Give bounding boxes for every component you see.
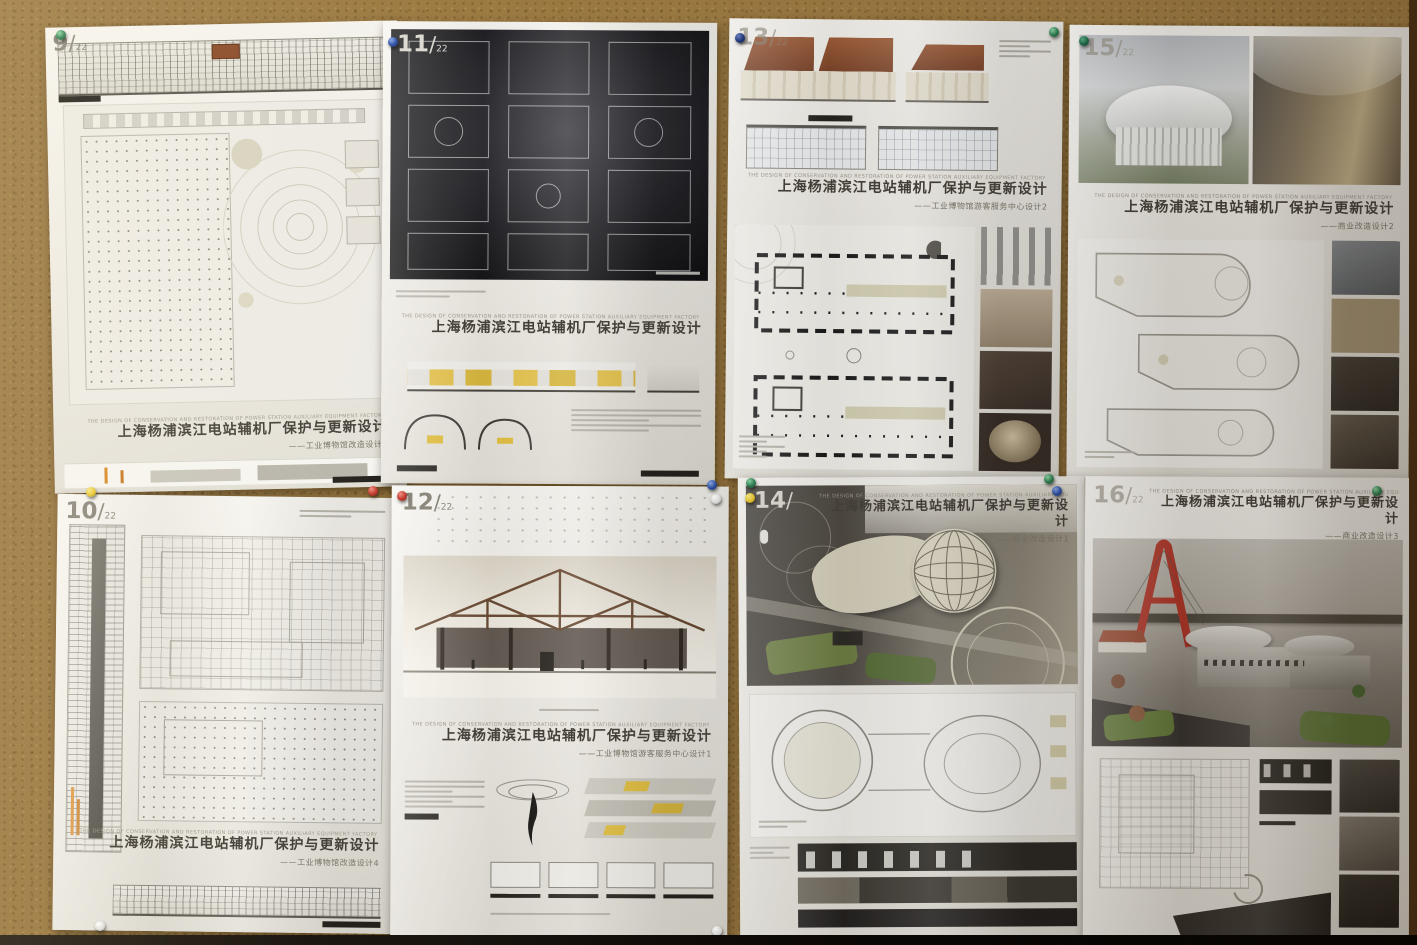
plan-and-photos: [733, 224, 1054, 471]
push-pin: [388, 37, 398, 47]
dark-elevation: [1260, 759, 1332, 783]
poster-subtitle: ——工业博物馆游客服务中心设计1: [412, 747, 712, 759]
text-line: [571, 409, 701, 412]
render-photo-column: [1330, 241, 1400, 469]
push-pin: [397, 491, 407, 501]
caption-bar: [322, 921, 380, 928]
yellow-highlight-elevation: [407, 361, 635, 392]
poster-subtitle: ——商业改造设计3: [1149, 529, 1399, 541]
legend-line: [739, 440, 767, 442]
poster-page-number: 16/22: [1093, 484, 1144, 507]
text-line: [571, 424, 701, 427]
dark-elevation: [1259, 790, 1331, 814]
title-block: THE DESIGN OF CONSERVATION AND RESTORATI…: [402, 313, 702, 338]
push-pin: [1052, 486, 1062, 496]
text-line: [405, 805, 485, 807]
push-pin: [746, 478, 756, 488]
interior-render: [1331, 357, 1399, 411]
text-line: [999, 50, 1051, 53]
round-building-render: 15/22: [1078, 35, 1249, 184]
dark-elevation-strip: [798, 842, 1077, 871]
poster-15: 15/22 THE DESIGN OF CONSERVATION AND RES…: [1066, 25, 1411, 479]
text-line: [396, 295, 450, 297]
poster-16: 16/22 THE DESIGN OF CONSERVATION AND RES…: [1083, 476, 1411, 941]
plan-legend: [739, 432, 785, 460]
title-block: THE DESIGN OF CONSERVATION AND RESTORATI…: [79, 828, 379, 868]
curved-ceiling: [1253, 36, 1402, 96]
push-pin: [86, 487, 96, 497]
brick-block-detail: [212, 44, 240, 60]
push-pin: [1372, 486, 1382, 496]
small-plan-sketches: [396, 287, 486, 300]
plan-room: [161, 551, 251, 615]
facade-render: [1339, 874, 1399, 928]
push-pin: [368, 486, 378, 496]
push-pin: [1049, 27, 1059, 37]
poster-9: 9/22 THE DESIGN OF CONSERVATI: [45, 20, 407, 493]
glass-section-drawing: [878, 126, 998, 171]
interior-render: [1253, 36, 1402, 185]
push-pin: [711, 494, 721, 504]
push-pin: [56, 30, 66, 40]
push-pin: [1079, 36, 1089, 46]
dark-section-strip: [798, 876, 1077, 903]
poster-subtitle: ——商业改造设计1: [819, 533, 1069, 545]
poster-page-number: 10/22: [65, 500, 116, 524]
interior-render: [1331, 299, 1399, 353]
title-block: THE DESIGN OF CONSERVATION AND RESTORATI…: [87, 413, 388, 456]
sketch-notes: [999, 37, 1052, 114]
caption-bar: [808, 115, 852, 121]
tree: [1322, 715, 1334, 727]
facade-render: [1339, 817, 1399, 871]
poster-subtitle: ——商业改造设计2: [1094, 218, 1394, 231]
plan-room: [163, 719, 262, 776]
thumbnail-captions: [490, 894, 713, 899]
tower-core: [88, 538, 106, 838]
poster-14: 14/ T: [738, 476, 1087, 937]
photo-caption: [656, 272, 700, 275]
vortex-diagram: [491, 774, 575, 848]
side-elevation-drawing: [906, 36, 990, 113]
floor-plan-drawing: [1099, 758, 1250, 889]
poster-title: 上海杨浦滨江电站辅机厂保护与更新设计: [79, 834, 379, 855]
title-block: THE DESIGN OF CONSERVATION AND RESTORATI…: [1149, 488, 1399, 541]
yellow-volume: [651, 803, 684, 813]
round-window-render: [979, 413, 1052, 472]
margin-notes: [750, 844, 790, 927]
glazing-band: [1116, 127, 1222, 166]
floor-plan-drawing: [733, 224, 976, 470]
text-line: [405, 785, 485, 787]
poster-11: 11/22 THE DESIGN OF CONSERVATION AND RES…: [381, 21, 717, 485]
wall-edge: [1409, 0, 1417, 945]
poster-title: 上海杨浦滨江电站辅机厂保护与更新设计: [402, 319, 702, 338]
building-block: [833, 631, 863, 645]
section-outline: [490, 862, 540, 888]
section-outline: [606, 862, 656, 888]
poster-page-number: 14/: [754, 490, 793, 513]
tree: [1352, 685, 1365, 698]
poster-page-number: 15/22: [1083, 37, 1134, 60]
truss-linework: [403, 555, 716, 698]
title-block: THE DESIGN OF CONSERVATION AND RESTORATI…: [747, 172, 1047, 212]
elevation-end-block: [647, 363, 699, 393]
render-photo-column: [1339, 759, 1400, 927]
section-thumbnails: [490, 862, 713, 889]
poster-page-number: 12/22: [402, 491, 453, 514]
caption-bar: [490, 894, 540, 898]
poster-subtitle: ——工业博物馆游客服务中心设计2: [747, 198, 1047, 212]
text-line: [759, 821, 807, 823]
text-line: [1085, 451, 1135, 453]
text-line: [999, 45, 1030, 47]
poster-title: 上海杨浦滨江电站辅机厂保护与更新设计: [1149, 494, 1399, 528]
crane-mast: [104, 468, 107, 484]
roof-shape: [819, 37, 894, 72]
section-row: [746, 124, 998, 171]
window-band: [1204, 659, 1304, 666]
text-line: [571, 419, 649, 421]
night-interior-photo: 11/22: [390, 29, 709, 281]
dark-elevation-stack: [1259, 759, 1331, 825]
machine-relic: [540, 652, 554, 672]
text-line: [405, 795, 485, 797]
long-elevation-drawing: [113, 885, 381, 919]
push-pin: [95, 921, 105, 931]
text-line: [405, 780, 485, 782]
poster-page-number: 11/22: [397, 33, 448, 56]
plan-room-box: [345, 140, 380, 169]
green-lawn: [865, 652, 937, 685]
caption-bar: [405, 813, 439, 819]
render-caption: [539, 709, 599, 711]
axon-slab: [584, 778, 716, 794]
push-pin: [745, 493, 755, 503]
crane-mast: [121, 470, 124, 483]
arch-diagrams: [397, 405, 547, 454]
column-grid-plan: [80, 133, 234, 390]
render-row: 15/22: [1078, 35, 1401, 185]
text-line: [405, 790, 453, 792]
legend-line: [739, 445, 785, 447]
text-line: [750, 857, 790, 859]
shed-wall: [1098, 642, 1146, 652]
orange-accent-line: [71, 787, 75, 835]
interior-render: [1330, 415, 1398, 469]
dark-render-strip: [798, 908, 1077, 927]
plan-linework: [750, 693, 1076, 837]
caption-bar: [606, 894, 656, 898]
footnote-line: [490, 913, 610, 915]
aerial-bridge-render: [1092, 538, 1403, 748]
plan-room-box: [345, 178, 380, 207]
facade-bays: [906, 72, 989, 103]
vertical-elevation-strip: [65, 524, 125, 853]
overlaid-plan-linework: [390, 29, 709, 281]
yellow-volume: [603, 825, 626, 835]
tree: [1111, 674, 1125, 688]
site-plan-drawing: [63, 99, 391, 406]
building-mass: [151, 469, 241, 483]
push-pin: [707, 480, 717, 490]
facade-bays: [741, 70, 897, 102]
round-window: [989, 420, 1041, 462]
legend-line: [739, 435, 785, 437]
body-text-column: [405, 777, 485, 819]
axon-slab: [584, 822, 716, 838]
text-line: [999, 40, 1051, 43]
text-line: [750, 852, 774, 854]
caption-bar: [59, 96, 101, 103]
facade-render: [1339, 759, 1399, 813]
roof-shape: [911, 44, 984, 71]
scatter-diagram: [432, 492, 717, 551]
column-grid-plan: [138, 701, 383, 824]
green-lawn: [1299, 710, 1391, 747]
poster-subtitle: ——工业博物馆改造设计4: [79, 854, 379, 869]
legend-line: [739, 455, 767, 457]
interior-render: [980, 289, 1053, 348]
section-outline: [548, 862, 598, 888]
plan-room-box: [346, 216, 381, 245]
caption-bar: [641, 470, 699, 476]
text-line: [750, 847, 790, 849]
interior-render: [981, 227, 1054, 286]
caption-bar: [397, 465, 437, 471]
text-line: [396, 290, 486, 292]
render-strip: [64, 456, 396, 488]
photo-of-pinboard: 9/22 THE DESIGN OF CONSERVATI: [0, 0, 1417, 945]
annotation-text-block: [571, 406, 701, 435]
floor-plans-drawing: [1076, 239, 1324, 469]
plan-room: [169, 641, 302, 678]
glass-section-drawing: [746, 124, 866, 169]
yellow-volume: [623, 781, 650, 791]
header-notes: [299, 507, 385, 521]
poster-title: 上海杨浦滨江电站辅机厂保护与更新设计: [412, 727, 712, 746]
section-outline: [664, 862, 714, 888]
text-line: [759, 826, 788, 828]
legend-line: [739, 450, 767, 452]
caption-bar: [1259, 821, 1295, 825]
caption-bar: [664, 894, 714, 898]
text-line: [999, 55, 1030, 57]
exterior-render: [1332, 241, 1400, 295]
elevation-bays: [407, 369, 635, 386]
interior-render: [979, 351, 1052, 410]
plan-room-row: [83, 108, 365, 129]
axon-diagram-stack: [587, 774, 714, 844]
floor-shadow: [0, 935, 1417, 945]
plan-notes: [759, 818, 807, 831]
poster-12: 12/22: [390, 485, 729, 936]
poster-10: 10/22 THE DESIGN OF CONSERVATION AND RES…: [52, 494, 399, 934]
floor-plan-drawing: [749, 692, 1077, 838]
title-block: THE DESIGN OF CONSERVATION AND RESTORATI…: [412, 721, 712, 759]
push-pin: [735, 33, 745, 43]
text-line: [1085, 456, 1115, 458]
blob-plan-linework: [1076, 239, 1324, 469]
text-line: [571, 414, 701, 417]
text-line: [299, 510, 385, 513]
round-tower: [1284, 635, 1354, 657]
plan-room: [289, 562, 365, 644]
text-line: [405, 800, 453, 802]
poster-title: 上海杨浦滨江电站辅机厂保护与更新设计: [819, 498, 1069, 532]
title-block: THE DESIGN OF CONSERVATION AND RESTORATI…: [1094, 193, 1394, 232]
text-line: [571, 429, 649, 431]
plan-hall: [1118, 775, 1194, 854]
poster-13: 13/22 THE DESIGN OF CO: [725, 18, 1064, 481]
push-pin: [1044, 474, 1054, 484]
text-line: [299, 515, 351, 518]
red-roof-shed: [1099, 630, 1147, 642]
floor-plan-drawing: [139, 535, 385, 692]
plan-notes: [1085, 448, 1135, 461]
building-elevation-drawing: [57, 37, 386, 97]
axon-slab: [584, 800, 716, 816]
title-block: THE DESIGN OF CONSERVATION AND RESTORATI…: [819, 492, 1069, 545]
timber-truss-render: [403, 555, 716, 698]
render-photo-column: [979, 227, 1054, 472]
poster-title: 上海杨浦滨江电站辅机厂保护与更新设计: [748, 178, 1048, 199]
caption-bar: [548, 894, 598, 898]
poster-title: 上海杨浦滨江电站辅机厂保护与更新设计: [1094, 199, 1394, 219]
